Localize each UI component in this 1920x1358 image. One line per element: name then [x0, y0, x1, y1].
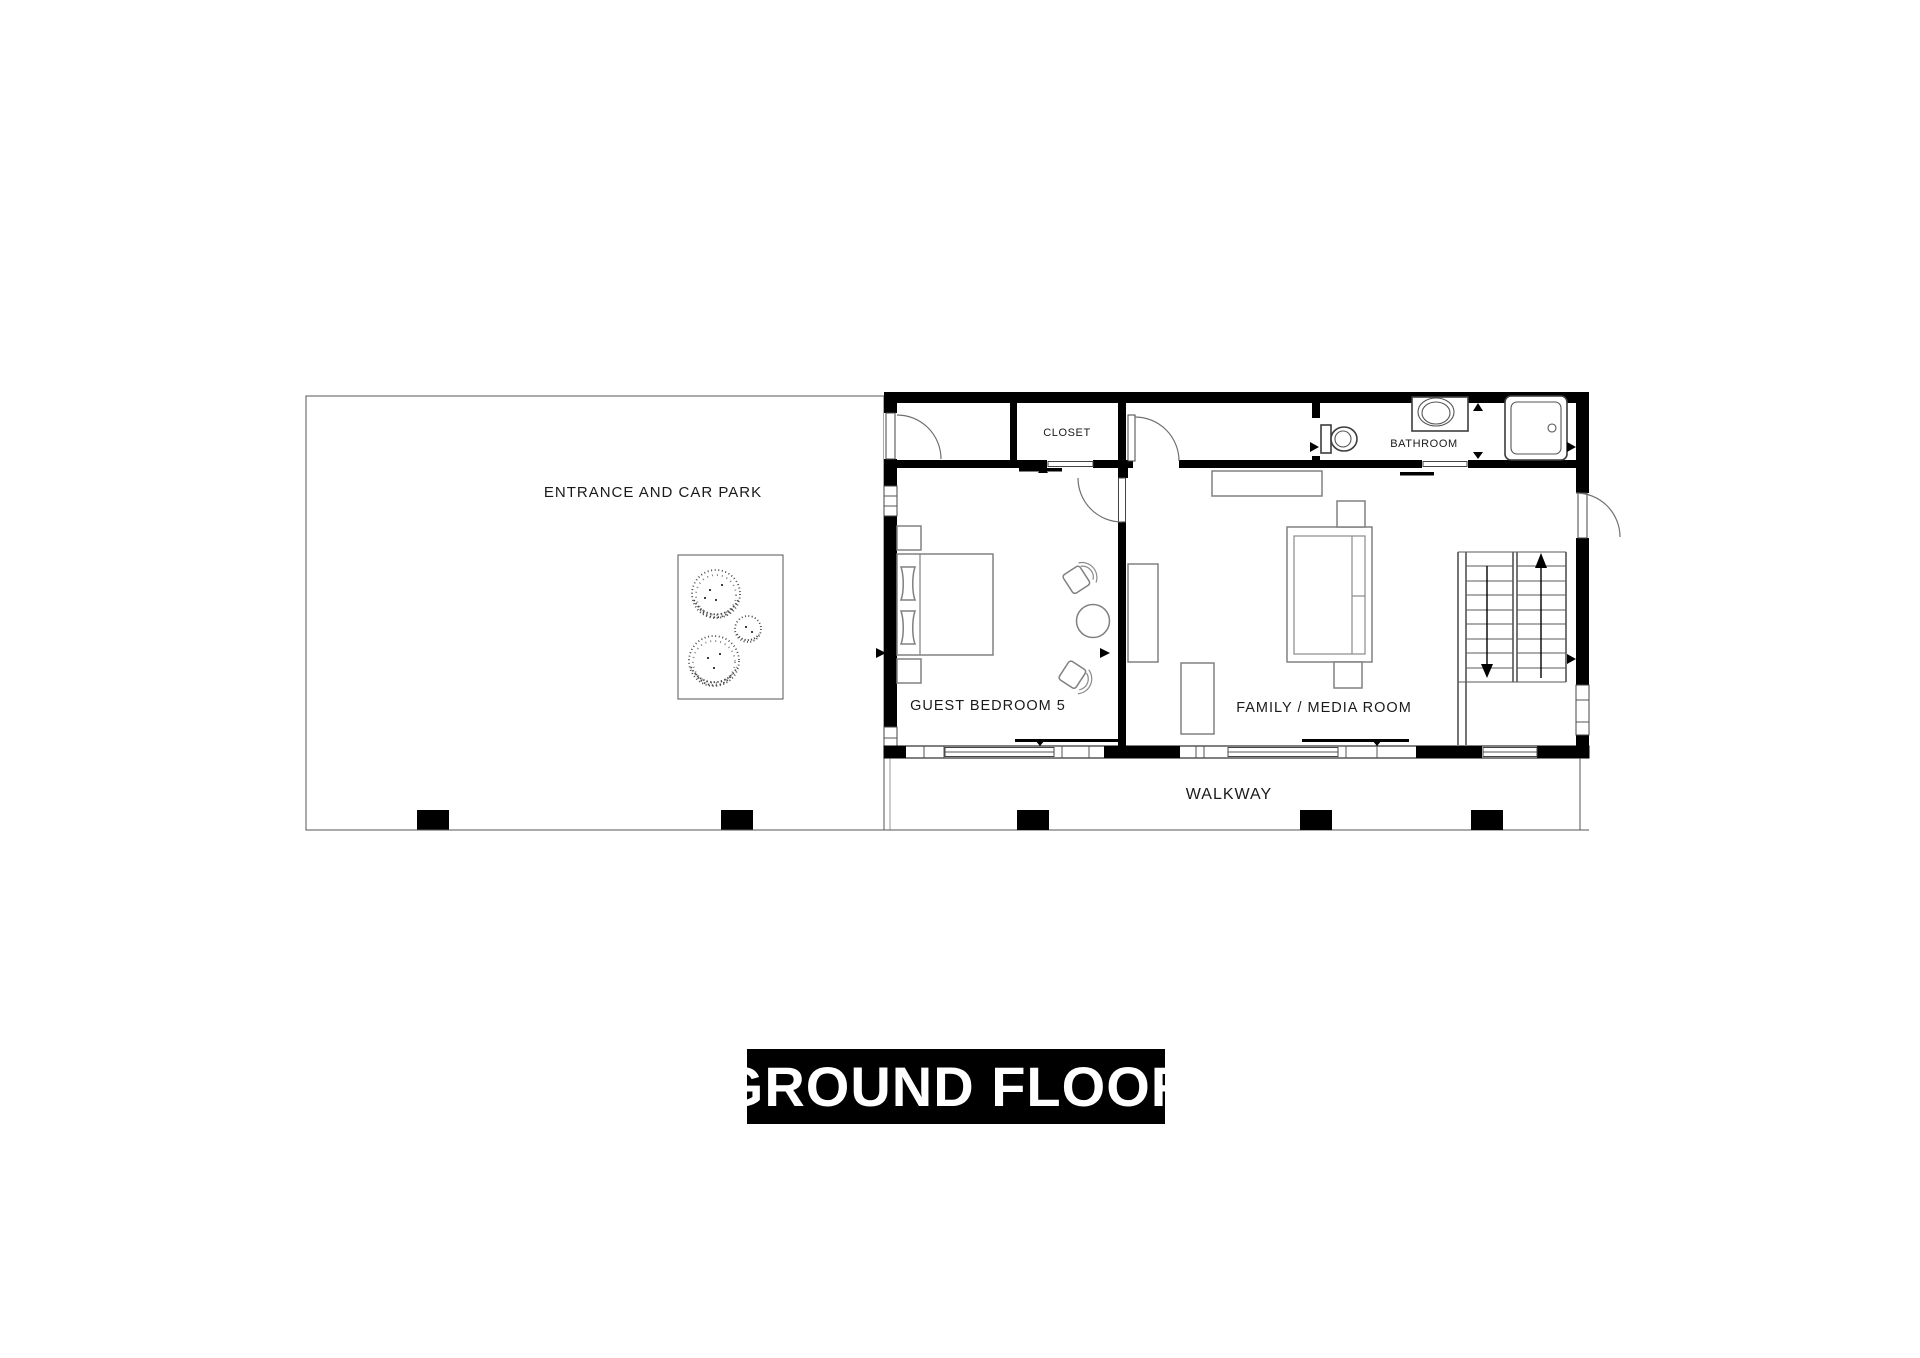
entrance-outline	[306, 396, 884, 830]
nightstand	[897, 659, 921, 683]
window	[1228, 748, 1338, 757]
family-room-label: FAMILY / MEDIA ROOM	[1236, 700, 1412, 716]
guest-bedroom-label: GUEST BEDROOM 5	[910, 698, 1066, 714]
post	[721, 810, 753, 830]
sink-icon	[1412, 397, 1468, 431]
marker-arrow	[1372, 740, 1382, 746]
divider-corridor-closet	[1010, 403, 1017, 460]
window	[945, 748, 1054, 757]
door	[1576, 493, 1620, 538]
top-exterior-wall	[884, 392, 1589, 403]
marker-arrow	[1100, 648, 1110, 658]
chair	[1057, 658, 1097, 697]
bed	[897, 554, 993, 655]
sliding-track	[1302, 739, 1409, 742]
door	[884, 413, 941, 459]
bush-icon	[689, 636, 739, 686]
divider-corridor2-bathroom	[1312, 403, 1320, 418]
console-shelf	[1212, 471, 1322, 496]
title-block: GROUND FLOOR	[720, 1049, 1192, 1124]
bottom-wall	[884, 746, 1589, 758]
window	[1576, 685, 1589, 735]
shower-icon	[1505, 396, 1567, 460]
floor-plan-drawing: ENTRANCE AND CAR PARK	[0, 0, 1920, 1358]
chair	[1061, 558, 1101, 597]
tv-cabinet	[1128, 564, 1158, 662]
pillow	[901, 611, 915, 644]
page-title: GROUND FLOOR	[720, 1055, 1192, 1118]
walkway-label: WALKWAY	[1186, 786, 1272, 803]
stairs-up-arrow	[1535, 553, 1547, 678]
closet-label: CLOSET	[1043, 427, 1091, 439]
marker-arrow	[1473, 403, 1483, 411]
floor-plan-page: ENTRANCE AND CAR PARK	[0, 0, 1920, 1358]
cabinet	[1181, 663, 1214, 734]
nightstand	[897, 526, 921, 550]
post	[1017, 810, 1049, 830]
stairs-down-arrow	[1481, 566, 1493, 678]
guest-bedroom: GUEST BEDROOM 5	[876, 526, 1140, 714]
round-table	[1077, 605, 1110, 638]
planter	[678, 555, 783, 699]
post	[417, 810, 449, 830]
marker-arrow	[1567, 442, 1576, 452]
closet-room: CLOSET	[1043, 427, 1091, 439]
toilet-icon	[1321, 425, 1357, 453]
marker-arrow	[1035, 740, 1045, 746]
bush-icon	[692, 570, 740, 618]
walkway: WALKWAY	[306, 758, 1589, 830]
sliding-track	[1015, 739, 1118, 742]
entrance-label: ENTRANCE AND CAR PARK	[544, 484, 762, 501]
door	[1078, 478, 1126, 522]
sofa	[1287, 527, 1372, 662]
family-media-room: FAMILY / MEDIA ROOM	[1128, 471, 1576, 745]
side-table	[1334, 662, 1362, 688]
bush-icon	[735, 616, 761, 642]
window	[884, 486, 897, 516]
marker-arrow	[1310, 442, 1319, 452]
divider-closet-corridor2	[1118, 403, 1126, 460]
divider-bedroom-family	[1118, 460, 1128, 478]
bathroom-label: BATHROOM	[1390, 438, 1458, 450]
marker-arrow	[1567, 654, 1576, 664]
marker-arrow	[1473, 452, 1483, 459]
staircase	[1458, 552, 1576, 745]
side-table	[1337, 501, 1365, 527]
bathroom: BATHROOM	[1310, 396, 1576, 460]
pillow	[901, 567, 915, 600]
window	[1483, 748, 1537, 757]
entrance-car-park-area: ENTRANCE AND CAR PARK	[306, 396, 884, 830]
post	[1471, 810, 1503, 830]
post	[1300, 810, 1332, 830]
door	[1128, 415, 1179, 461]
